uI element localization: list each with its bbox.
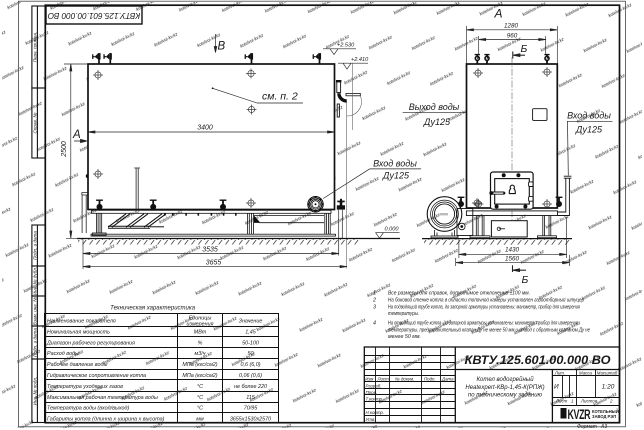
svg-text:Масса: Масса <box>579 370 593 375</box>
svg-text:1560: 1560 <box>505 255 520 262</box>
svg-text:И: И <box>554 384 559 391</box>
svg-text:Разраб.: Разраб. <box>366 383 382 388</box>
svg-text:Б: Б <box>521 43 528 55</box>
svg-text:Инв. № дубл.: Инв. № дубл. <box>32 267 37 295</box>
svg-text:менее 50 мм.: менее 50 мм. <box>388 334 421 340</box>
svg-text:°С: °С <box>197 406 203 412</box>
svg-text:МПа (кгс/см2): МПа (кгс/см2) <box>182 362 217 368</box>
svg-text:°С: °С <box>197 384 203 390</box>
svg-text:температуры.: температуры. <box>388 311 419 317</box>
svg-text:Расход воды: Расход воды <box>47 351 79 357</box>
svg-text:Вход воды: Вход воды <box>567 111 611 121</box>
svg-text:Вход воды: Вход воды <box>373 159 417 169</box>
svg-text:Изм: Изм <box>365 377 373 382</box>
svg-text:не более 220: не более 220 <box>234 384 267 390</box>
svg-text:На подводящий трубе котла, до: На подводящий трубе котла, до запорной а… <box>388 303 580 310</box>
svg-text:мм: мм <box>196 417 204 423</box>
svg-text:Подп.: Подп. <box>424 377 436 382</box>
svg-text:Наименование показателя: Наименование показателя <box>47 319 116 325</box>
svg-text:см. п. 2: см. п. 2 <box>262 91 298 103</box>
svg-text:1: 1 <box>373 291 376 297</box>
svg-text:Выход воды: Выход воды <box>409 102 460 112</box>
svg-text:Ду125: Ду125 <box>575 125 603 135</box>
svg-text:Перв. примен.: Перв. примен. <box>32 32 37 63</box>
svg-text:Все размеры для справок, допус: Все размеры для справок, допустимое откл… <box>388 291 530 297</box>
svg-text:№ докум.: № докум. <box>395 377 414 382</box>
svg-text:3535: 3535 <box>202 247 218 254</box>
svg-text:Справ. №: Справ. № <box>32 113 37 134</box>
svg-text:Формат: Формат <box>577 424 597 430</box>
svg-text:2: 2 <box>372 297 376 303</box>
svg-text:Утв.: Утв. <box>366 417 376 422</box>
svg-text:Дата: Дата <box>441 377 454 382</box>
svg-text:115: 115 <box>246 395 256 401</box>
svg-text:%: % <box>198 341 203 347</box>
svg-text:1430: 1430 <box>505 247 520 254</box>
svg-text:Т.контр.: Т.контр. <box>366 397 384 402</box>
svg-text:0,06 (0,6): 0,06 (0,6) <box>239 373 262 379</box>
svg-text:Максимальная рабочая температу: Максимальная рабочая температура воды <box>47 395 158 401</box>
svg-text:Рабочее давление воды: Рабочее давление воды <box>47 362 107 368</box>
svg-text:А3: А3 <box>600 424 607 430</box>
svg-text:Диапазон рабочего регулировани: Диапазон рабочего регулирования <box>46 341 135 347</box>
svg-text:KVZR: KVZR <box>568 408 592 422</box>
svg-text:1280: 1280 <box>504 23 519 30</box>
svg-text:Лист: Лист <box>377 377 390 382</box>
svg-text:3: 3 <box>373 304 376 310</box>
svg-text:КВТУ.125.601.00.000 ВО: КВТУ.125.601.00.000 ВО <box>465 353 612 367</box>
svg-text:Листов: Листов <box>580 399 598 404</box>
svg-text:°С: °С <box>197 395 203 401</box>
svg-text:3655х1530х2570: 3655х1530х2570 <box>230 417 271 423</box>
svg-text:Ду125: Ду125 <box>382 171 410 181</box>
svg-text:+2.530: +2.530 <box>337 43 355 49</box>
svg-text:Температура уходящих газов: Температура уходящих газов <box>47 384 123 390</box>
svg-text:2: 2 <box>609 399 613 404</box>
svg-text:Heatexpert-КВр-1,45-К(РПЖ): Heatexpert-КВр-1,45-К(РПЖ) <box>465 385 544 391</box>
svg-text:Значение: Значение <box>239 319 263 325</box>
svg-text:А: А <box>72 129 81 141</box>
svg-text:Инв. № подл.: Инв. № подл. <box>32 377 37 406</box>
svg-text:В: В <box>218 41 226 53</box>
svg-text:температуры, предохранительный: температуры, предохранительный клапан Ду… <box>388 326 590 333</box>
svg-text:Взам. инв. №: Взам. инв. № <box>32 297 37 325</box>
svg-text:1:20: 1:20 <box>602 384 615 391</box>
svg-text:МВт: МВт <box>194 330 207 336</box>
svg-text:Техническая характеристика: Техническая характеристика <box>110 306 196 312</box>
svg-text:3655: 3655 <box>206 260 222 267</box>
svg-text:70/95: 70/95 <box>244 406 258 412</box>
svg-text:ЗАВОД РЭП: ЗАВОД РЭП <box>592 414 616 419</box>
svg-text:960: 960 <box>507 32 518 39</box>
svg-text:Подп. и дата: Подп. и дата <box>32 328 37 357</box>
svg-text:3400: 3400 <box>197 125 213 132</box>
svg-text:МПа (кгс/см2): МПа (кгс/см2) <box>182 373 217 379</box>
svg-text:Н.контр.: Н.контр. <box>366 410 385 415</box>
svg-text:А: А <box>494 7 503 21</box>
svg-text:0.000: 0.000 <box>385 227 400 233</box>
svg-text:На отводящий трубе котла ,до з: На отводящий трубе котла ,до запорной ар… <box>388 320 578 327</box>
svg-text:Лит.: Лит. <box>554 370 565 375</box>
svg-text:по техническому заданию: по техническому заданию <box>468 393 543 399</box>
svg-text:Габариты котла (длинна х ширин: Габариты котла (длинна х ширина х высота… <box>47 417 165 423</box>
svg-text:+2.410: +2.410 <box>351 57 369 63</box>
svg-text:50-100: 50-100 <box>242 341 259 347</box>
svg-text:м3/ч: м3/ч <box>195 351 206 357</box>
svg-text:На боковой стенке котла в обла: На боковой стенке котла в области топочн… <box>388 296 584 303</box>
svg-text:Ду125: Ду125 <box>423 117 451 127</box>
svg-text:Котел водогрейный: Котел водогрейный <box>476 376 534 383</box>
svg-text:Гидравлическое сопротивление к: Гидравлическое сопротивление котла <box>47 373 146 379</box>
svg-text:измерения: измерения <box>187 322 214 328</box>
svg-text:1,45: 1,45 <box>245 330 256 336</box>
svg-text:0,6 (6,0): 0,6 (6,0) <box>240 362 260 368</box>
svg-text:Пров.: Пров. <box>366 390 378 395</box>
svg-text:Б: Б <box>522 274 529 286</box>
svg-text:4: 4 <box>373 321 376 327</box>
svg-text:Температура воды (вход/выход): Температура воды (вход/выход) <box>47 406 130 412</box>
svg-text:КВТУ.125.601.00.000 ВО: КВТУ.125.601.00.000 ВО <box>47 11 140 20</box>
svg-text:50: 50 <box>248 351 254 357</box>
svg-text:Подп. и дата: Подп. и дата <box>32 231 37 260</box>
svg-text:Масштаб: Масштаб <box>597 370 618 375</box>
svg-text:Лист: Лист <box>555 399 568 404</box>
svg-text:2500: 2500 <box>61 141 68 158</box>
svg-text:Номинальная мощность: Номинальная мощность <box>47 330 110 336</box>
